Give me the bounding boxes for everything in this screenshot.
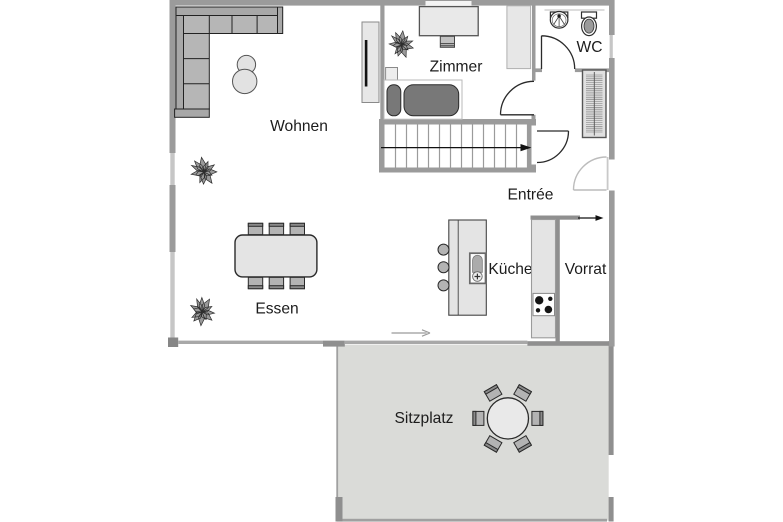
svg-text:WC: WC <box>577 39 603 56</box>
svg-text:Essen: Essen <box>255 301 298 318</box>
svg-text:Wohnen: Wohnen <box>270 118 328 135</box>
svg-text:Sitzplatz: Sitzplatz <box>395 410 454 427</box>
svg-text:Entrée: Entrée <box>508 187 554 204</box>
svg-text:Vorrat: Vorrat <box>565 261 607 278</box>
svg-text:Küche: Küche <box>488 261 532 278</box>
svg-text:Zimmer: Zimmer <box>430 58 483 75</box>
